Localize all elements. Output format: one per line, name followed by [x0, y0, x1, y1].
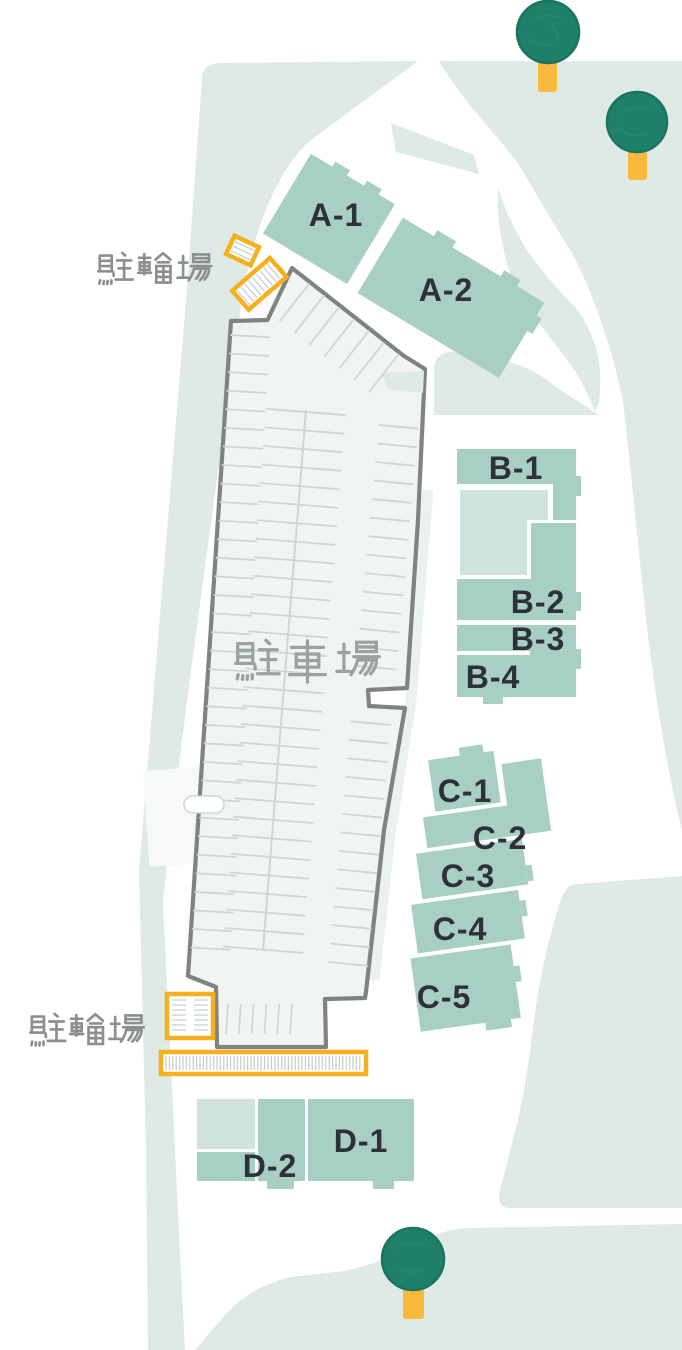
svg-text:D-2: D-2: [243, 1148, 298, 1184]
svg-text:C-4: C-4: [433, 911, 488, 947]
svg-text:C-2: C-2: [473, 820, 528, 856]
svg-text:A-2: A-2: [419, 272, 474, 308]
svg-text:B-3: B-3: [511, 621, 566, 657]
svg-text:C-3: C-3: [441, 858, 496, 894]
svg-text:B-1: B-1: [489, 450, 544, 486]
svg-text:D-1: D-1: [334, 1123, 389, 1159]
svg-text:C-1: C-1: [438, 773, 493, 809]
svg-text:B-2: B-2: [511, 584, 566, 620]
svg-text:B-4: B-4: [466, 659, 521, 695]
svg-text:C-5: C-5: [417, 979, 472, 1015]
svg-text:A-1: A-1: [309, 197, 364, 233]
